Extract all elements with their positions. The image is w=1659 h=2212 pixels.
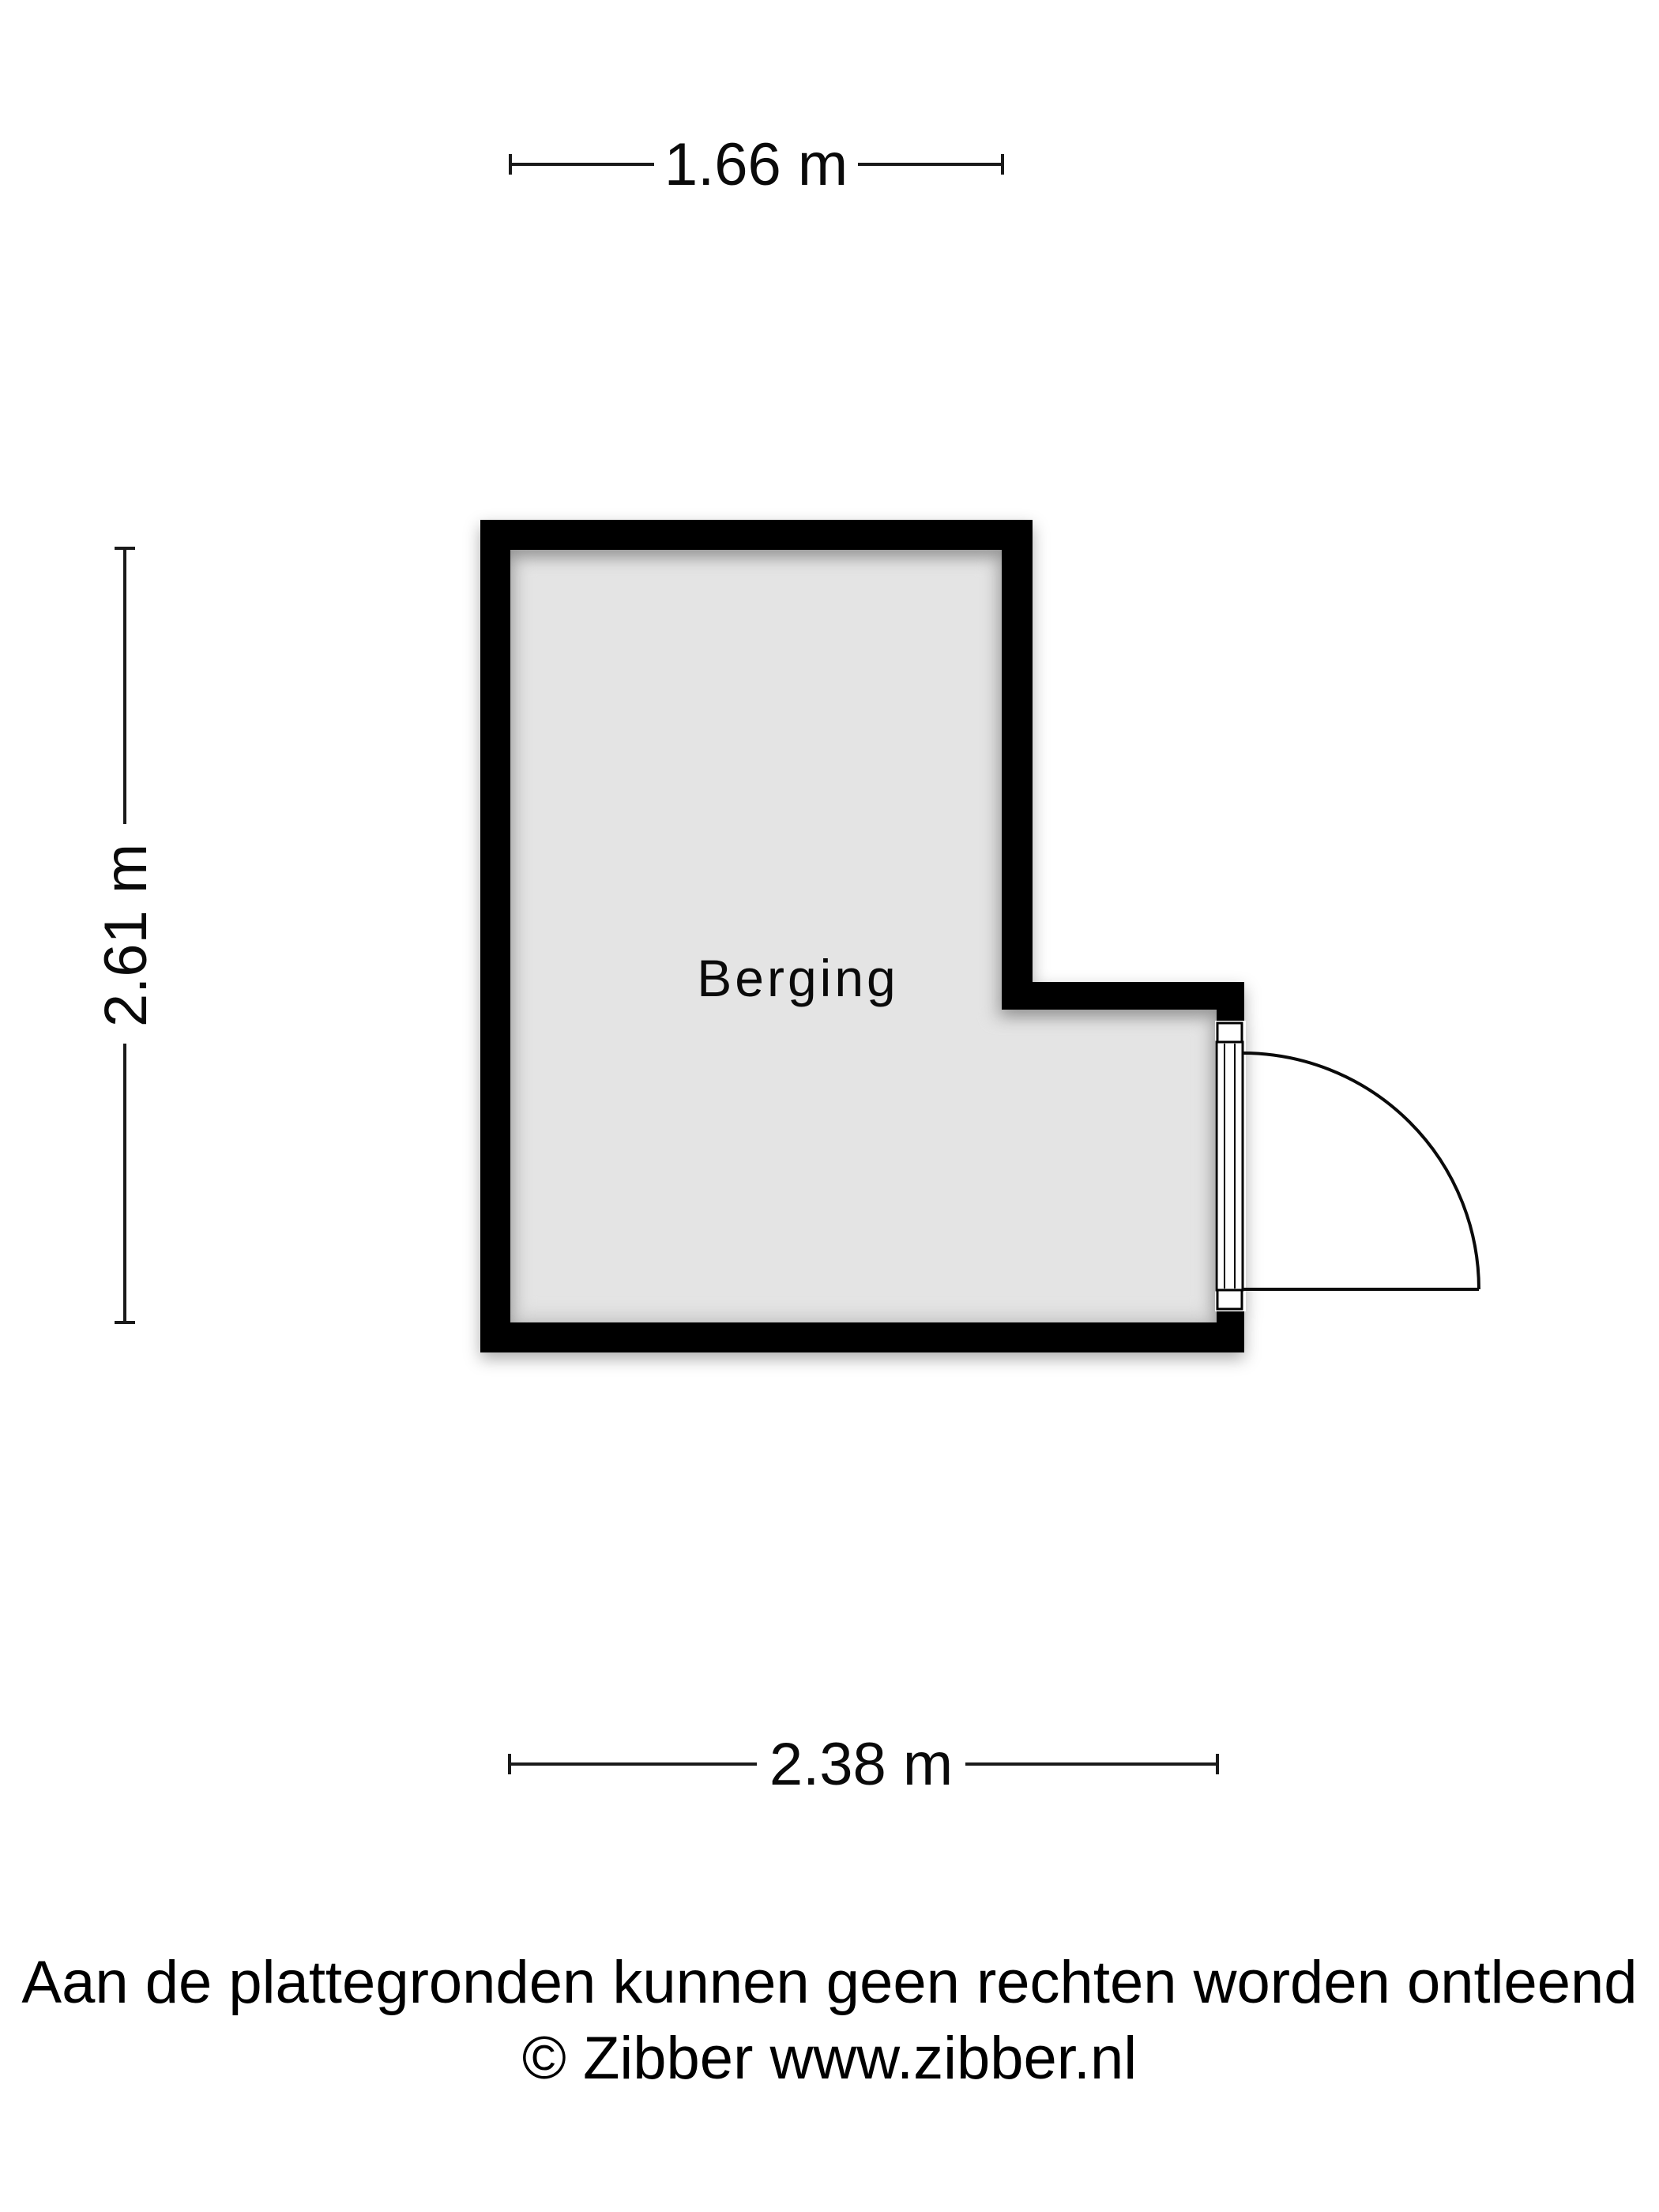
- door-jamb-top: [1217, 1023, 1242, 1042]
- floorplan-canvas: Berging 1.66 m 2.61 m 2.38 m: [0, 0, 1659, 2212]
- dimension-top-label: 1.66 m: [664, 131, 848, 198]
- footer-disclaimer: Aan de plattegronden kunnen geen rechten…: [0, 1948, 1659, 2017]
- door-swing-arc: [1243, 1053, 1479, 1289]
- door-frame: [1217, 1042, 1243, 1290]
- dimension-left-label: 2.61 m: [92, 844, 160, 1027]
- dimension-bottom: 2.38 m: [510, 1731, 1217, 1798]
- room-floor: [510, 550, 1217, 1322]
- room-berging: Berging: [480, 520, 1479, 1352]
- door-jamb-bottom: [1217, 1290, 1242, 1309]
- footer-copyright: © Zibber www.zibber.nl: [0, 2024, 1659, 2093]
- dimension-left: 2.61 m: [92, 548, 160, 1322]
- dimension-bottom-label: 2.38 m: [769, 1731, 953, 1798]
- dimension-top: 1.66 m: [510, 131, 1003, 198]
- room-label: Berging: [697, 949, 899, 1007]
